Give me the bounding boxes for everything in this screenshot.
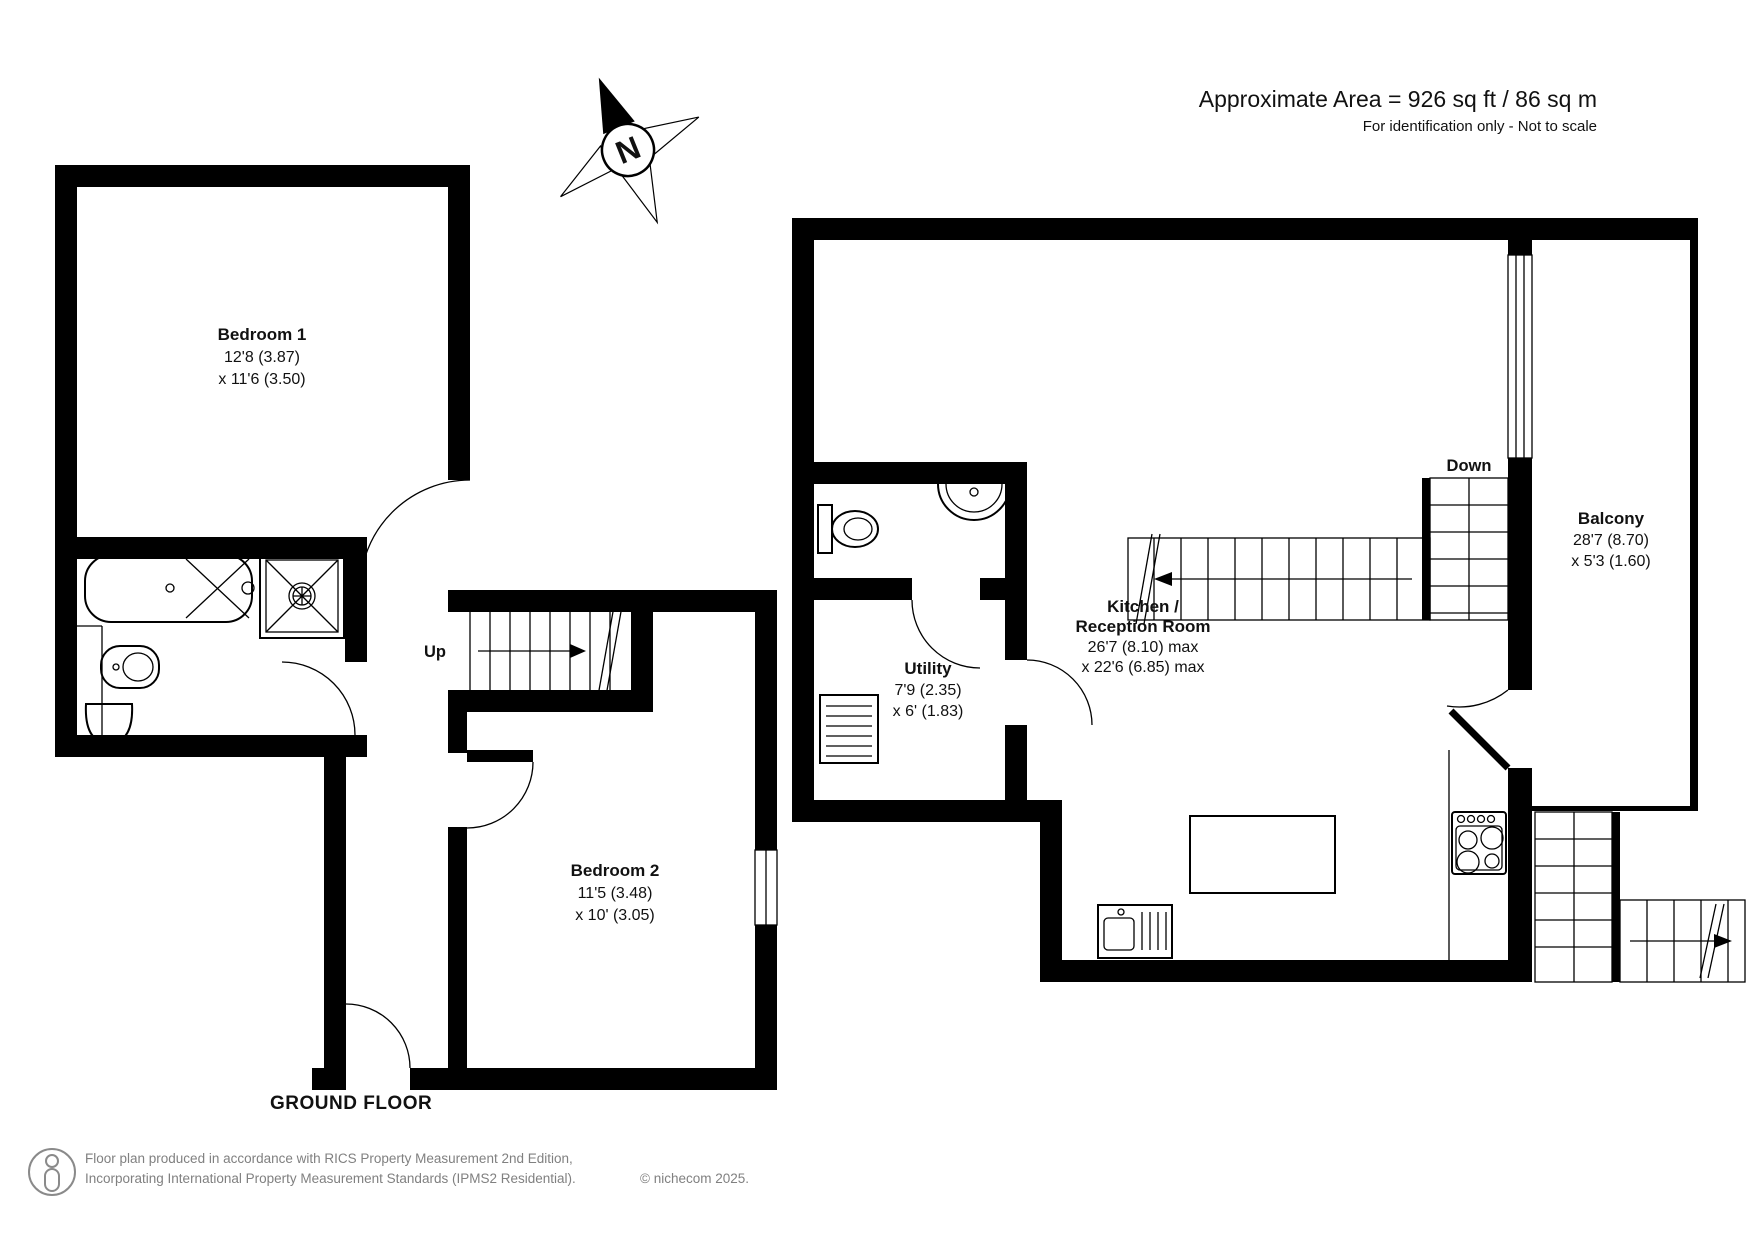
terrace-door-leaf <box>1451 711 1508 768</box>
kitchen-window <box>1508 255 1532 458</box>
up-label: Up <box>424 643 446 661</box>
wc-basin-icon <box>938 484 1010 520</box>
sink-icon <box>1098 905 1172 958</box>
bedroom2-name: Bedroom 2 <box>571 861 660 880</box>
footer-line1: Floor plan produced in accordance with R… <box>85 1151 573 1166</box>
bathroom-fixtures <box>77 554 344 753</box>
identification-note-text: For identification only - Not to scale <box>1363 118 1597 135</box>
balcony-dim1: 28'7 (8.70) <box>1573 532 1649 549</box>
entrance-door-arc <box>346 1004 410 1068</box>
wc-door-arc <box>912 600 980 668</box>
wc-toilet-icon <box>832 511 878 547</box>
footer-copyright: © nichecom 2025. <box>640 1171 749 1186</box>
floor-plan-page: Approximate Area = 926 sq ft / 86 sq m F… <box>0 0 1755 1241</box>
toilet-icon <box>101 646 159 688</box>
bedroom2-dim2: x 10' (3.05) <box>575 907 655 924</box>
left-plan-doors <box>282 480 533 1068</box>
left-plan-walls <box>55 165 777 1090</box>
ground-floor-label: GROUND FLOOR <box>270 1093 432 1114</box>
bedroom1-name: Bedroom 1 <box>218 325 307 344</box>
balcony-dim2: x 5'3 (1.60) <box>1571 553 1651 570</box>
bedroom1-dim1: 12'8 (3.87) <box>224 349 300 366</box>
balcony-label: Balcony 28'7 (8.70) x 5'3 (1.60) <box>1571 509 1651 570</box>
bedroom1-dim2: x 11'6 (3.50) <box>218 371 305 388</box>
up-arrow-head <box>570 644 586 658</box>
bedroom2-label: Bedroom 2 11'5 (3.48) x 10' (3.05) <box>571 861 660 924</box>
bedroom1-label: Bedroom 1 12'8 (3.87) x 11'6 (3.50) <box>218 325 307 388</box>
balcony-name: Balcony <box>1578 509 1645 528</box>
bathroom-door-arc <box>282 662 355 735</box>
down-label: Down <box>1447 457 1492 475</box>
hob-icon <box>1452 812 1506 874</box>
bedroom1-door-arc <box>360 480 470 590</box>
kitchen-label: Kitchen / Reception Room 26'7 (8.10) max… <box>1075 597 1210 676</box>
kitchen-dim2: x 22'6 (6.85) max <box>1081 659 1204 676</box>
kitchen-dim1: 26'7 (8.10) max <box>1088 639 1199 656</box>
utility-dim1: 7'9 (2.35) <box>894 682 961 699</box>
utility-label: Utility 7'9 (2.35) x 6' (1.83) <box>893 659 964 720</box>
footer-line2: Incorporating International Property Mea… <box>85 1171 576 1186</box>
utility-dim2: x 6' (1.83) <box>893 703 964 720</box>
bath-icon <box>85 555 252 622</box>
down-staircase: Down <box>1128 457 1508 624</box>
up-staircase: Up <box>424 606 622 696</box>
wc-toilet-cistern-icon <box>818 505 832 553</box>
bedroom2-dim1: 11'5 (3.48) <box>578 885 653 902</box>
utility-name: Utility <box>904 659 952 678</box>
island-icon <box>1190 816 1335 893</box>
bedroom2-window <box>755 850 777 925</box>
person-icon <box>29 1149 75 1195</box>
bath-drain-icon <box>166 584 174 592</box>
compass-icon: N <box>525 48 730 252</box>
external-staircase <box>1535 812 1745 982</box>
kitchen-name2: Reception Room <box>1075 617 1210 636</box>
down-arrow-head <box>1154 572 1172 586</box>
header: Approximate Area = 926 sq ft / 86 sq m F… <box>1199 86 1597 135</box>
right-plan-walls <box>792 218 1698 982</box>
floor-plan-svg: Approximate Area = 926 sq ft / 86 sq m F… <box>0 0 1755 1241</box>
approximate-area-text: Approximate Area = 926 sq ft / 86 sq m <box>1199 86 1597 112</box>
wc-fixtures <box>818 484 1010 553</box>
kitchen-fixtures <box>1098 750 1506 960</box>
footer: Floor plan produced in accordance with R… <box>29 1149 749 1195</box>
utility-appliance-icon <box>820 695 878 763</box>
terrace-door-arc <box>1447 690 1508 707</box>
kitchen-name1: Kitchen / <box>1107 597 1179 616</box>
bedroom2-door-arc <box>467 762 533 828</box>
